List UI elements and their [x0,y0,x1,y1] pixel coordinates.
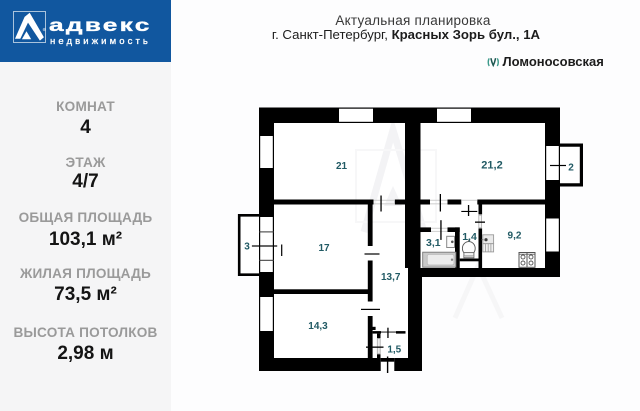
svg-text:1,5: 1,5 [387,344,401,355]
svg-text:13,7: 13,7 [381,272,401,283]
svg-text:3,1: 3,1 [426,237,441,249]
svg-text:21,2: 21,2 [481,160,502,172]
svg-text:9,2: 9,2 [508,230,522,241]
svg-text:2: 2 [568,162,574,173]
svg-text:14,3: 14,3 [308,321,328,332]
svg-text:1,4: 1,4 [462,231,477,243]
svg-text:21: 21 [336,161,348,172]
svg-text:17: 17 [318,243,330,254]
svg-text:3: 3 [244,242,250,253]
